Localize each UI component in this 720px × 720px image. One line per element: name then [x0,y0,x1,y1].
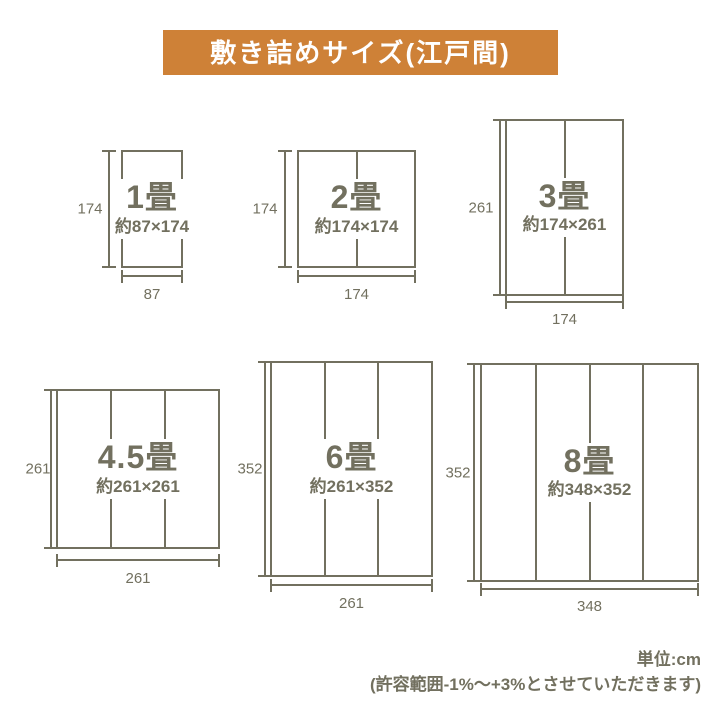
tatami-count-label: 6畳 [326,441,378,475]
tatami-size-label: 約348×352 [548,481,632,500]
tatami-size-label: 約261×261 [96,478,180,497]
tatami-center-label: 2畳 約174×174 [310,179,404,238]
title-banner: 敷き詰めサイズ(江戸間) [163,30,558,75]
width-dimension-label: 174 [507,312,622,327]
width-dimension-line [121,270,183,283]
tatami-count-label: 3畳 [539,180,591,214]
tatami-count-label: 2畳 [331,181,383,215]
width-dimension-line [505,296,624,309]
tatami-center-label: 4.5畳 約261×261 [91,439,185,498]
tatami-center-label: 6畳 約261×352 [305,439,399,498]
page-title: 敷き詰めサイズ(江戸間) [210,40,511,66]
tatami-center-label: 1畳 約87×174 [110,179,194,238]
height-dimension-label: 261 [462,200,500,215]
height-dimension-label: 352 [231,462,269,477]
height-dimension-label: 352 [439,465,477,480]
tatami-size-label: 約174×261 [523,216,607,235]
tatami-count-label: 1畳 [126,181,178,215]
width-dimension-line [56,554,220,567]
tatami-rect: 2畳 約174×174 174 174 [297,150,416,268]
width-dimension-label: 261 [272,596,431,611]
width-dimension-line [297,270,416,283]
tatami-divider [642,363,644,582]
tatami-size-label: 約87×174 [115,218,189,237]
tatami-center-label: 3畳 約174×261 [518,178,612,237]
tatami-rect: 1畳 約87×174 174 87 [121,150,183,268]
width-dimension-label: 174 [299,287,414,302]
width-dimension-label: 87 [123,287,181,302]
footer-notes: 単位:cm (許容範囲-1%〜+3%とさせていただきます) [370,648,701,697]
tatami-rect: 4.5畳 約261×261 261 261 [56,389,220,549]
tolerance-note: (許容範囲-1%〜+3%とさせていただきます) [370,673,701,698]
width-dimension-label: 261 [58,571,218,586]
tatami-center-label: 8畳 約348×352 [543,443,637,502]
tatami-count-label: 4.5畳 [98,441,179,475]
tatami-size-label: 約261×352 [310,478,394,497]
height-dimension-label: 261 [19,462,57,477]
tatami-rect: 8畳 約348×352 352 348 [480,363,699,582]
height-dimension-label: 174 [71,202,109,217]
width-dimension-label: 348 [482,599,697,614]
unit-note: 単位:cm [370,648,701,673]
tatami-rect: 6畳 約261×352 352 261 [270,361,433,577]
size-chart-page: 敷き詰めサイズ(江戸間) 1畳 約87×174 174 87 2畳 約174×1… [0,0,720,720]
tatami-rect: 3畳 約174×261 261 174 [505,119,624,296]
tatami-count-label: 8畳 [564,445,616,479]
tatami-divider [535,363,537,582]
width-dimension-line [480,583,699,596]
width-dimension-line [270,579,433,592]
height-dimension-label: 174 [246,202,284,217]
tatami-size-label: 約174×174 [315,218,399,237]
